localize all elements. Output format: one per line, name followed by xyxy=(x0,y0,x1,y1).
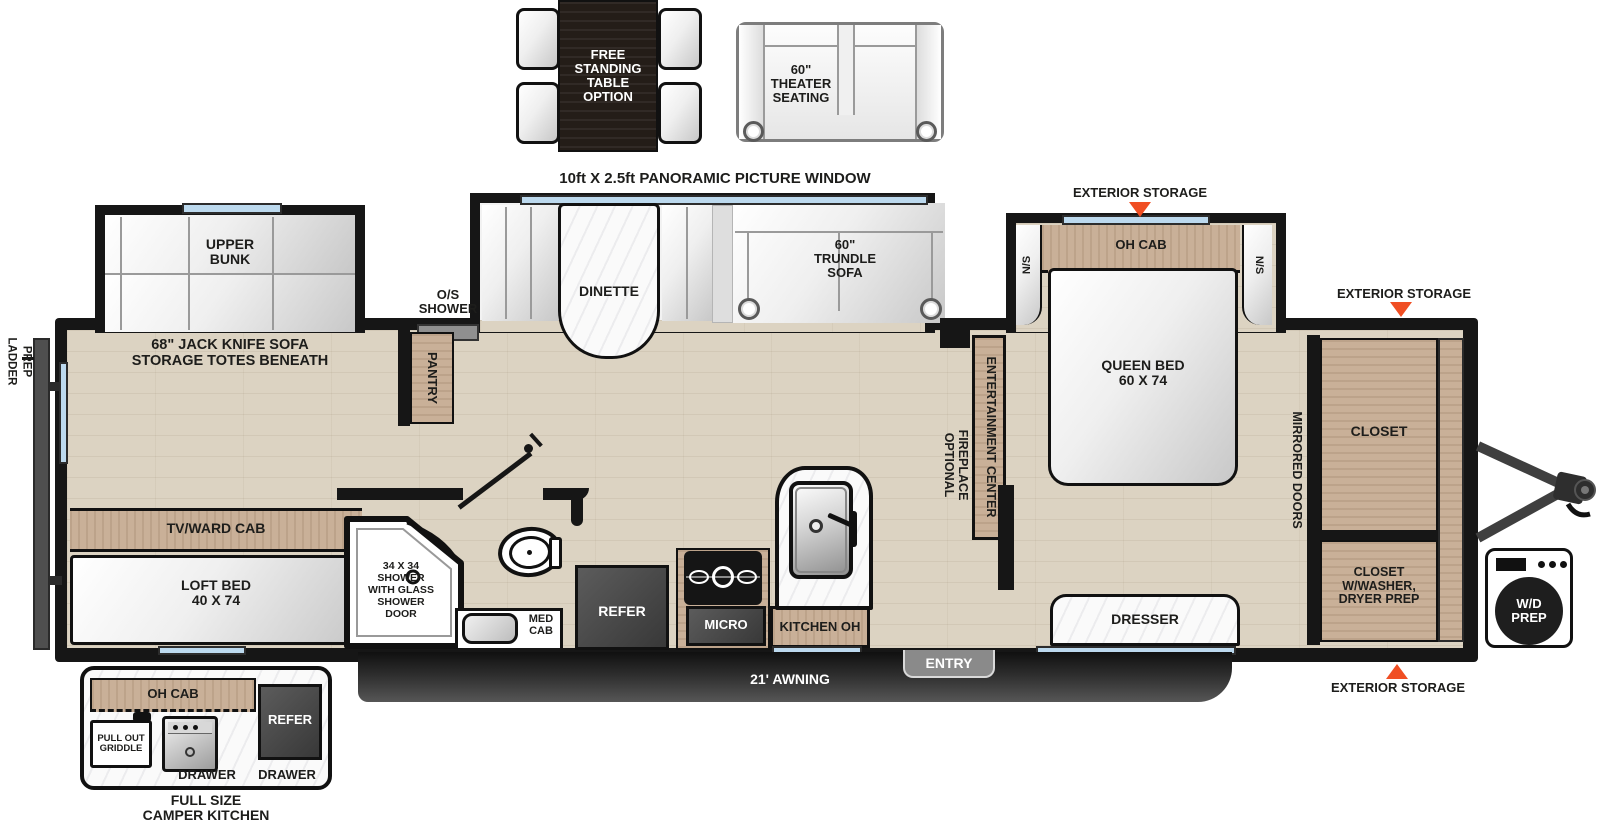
range-burner-icon xyxy=(185,747,195,757)
slideout-partition xyxy=(712,205,733,323)
bunk-divider xyxy=(272,217,274,330)
loft-bed-label: LOFT BED 40 X 74 xyxy=(70,578,362,608)
wd-knob-icon xyxy=(1549,561,1556,568)
nightstand-right-label: N/S xyxy=(1250,235,1264,295)
cooktop xyxy=(684,551,762,605)
drawer-label: DRAWER xyxy=(248,768,326,782)
trundle-sofa-label: 60" TRUNDLE SOFA xyxy=(795,238,895,280)
nightstand-left-label: N/S xyxy=(1022,235,1036,295)
exterior-storage-top-marker-icon xyxy=(1129,202,1151,217)
rv-floorplan-canvas: FREE STANDING TABLE OPTION 60" THEATER S… xyxy=(0,0,1600,828)
theater-cupholder xyxy=(743,121,764,142)
closet-washer-label: CLOSET W/WASHER, DRYER PREP xyxy=(1318,566,1440,607)
range-knob-icon xyxy=(193,725,198,730)
entry-label: ENTRY xyxy=(903,656,995,671)
mirrored-doors-label: MIRRORED DOORS xyxy=(1289,375,1303,565)
bench-divider xyxy=(530,207,532,319)
sofa-cupholder xyxy=(920,298,942,320)
queen-bed-label: QUEEN BED 60 X 74 xyxy=(1048,358,1238,388)
awning-label: 21' AWNING xyxy=(700,672,880,687)
bathroom-wall xyxy=(337,488,463,500)
bench-divider xyxy=(686,207,688,319)
dining-chair xyxy=(516,8,560,70)
bunk-divider xyxy=(120,217,122,330)
wd-knob-icon xyxy=(1538,561,1545,568)
partition-wall xyxy=(998,485,1014,590)
bunk-sofa-cushions xyxy=(105,275,355,332)
wd-drum-icon: W/D PREP xyxy=(1495,577,1563,645)
micro-label: MICRO xyxy=(686,618,766,632)
theater-cupholder xyxy=(916,121,937,142)
jack-knife-sofa-label: 68" JACK KNIFE SOFA STORAGE TOTES BENEAT… xyxy=(95,338,365,369)
wd-prep-label: W/D xyxy=(1511,597,1546,611)
washer-dryer-prep-icon: W/D PREP xyxy=(1485,548,1573,648)
optional-fireplace-label: OPTIONAL xyxy=(941,410,955,520)
partition-wall xyxy=(940,318,970,348)
range-knob-icon xyxy=(173,725,178,730)
pantry-wall xyxy=(398,330,410,426)
panoramic-window-label: 10ft X 2.5ft PANORAMIC PICTURE WINDOW xyxy=(480,171,950,187)
range-knob-icon xyxy=(183,725,188,730)
kitchen-oh-label: KITCHEN OH xyxy=(770,620,870,634)
tv-ward-cab-label: TV/WARD CAB xyxy=(70,521,362,536)
toilet-tank xyxy=(549,537,562,569)
pantry-label: PANTRY xyxy=(425,338,439,418)
upper-bunk-label: UPPER BUNK xyxy=(160,237,300,267)
ladder-prep-label: LADDER xyxy=(5,332,18,392)
exterior-storage-right-marker-icon xyxy=(1390,302,1412,317)
faucet-mount-icon xyxy=(849,511,857,547)
exterior-storage-bottom-label: EXTERIOR STORAGE xyxy=(1312,681,1484,695)
exterior-storage-right-label: EXTERIOR STORAGE xyxy=(1318,287,1490,301)
closet-divider-wall xyxy=(1320,530,1438,540)
camper-oh-cab-label: OH CAB xyxy=(90,687,256,701)
wd-panel-icon xyxy=(1496,558,1526,571)
free-standing-table: FREE STANDING TABLE OPTION xyxy=(558,0,658,152)
oh-cab-label: OH CAB xyxy=(1042,238,1240,252)
bench-divider xyxy=(505,207,507,319)
entertainment-center-label: ENTERTAINMENT CENTER xyxy=(981,337,997,537)
camper-kitchen-caption: FULL SIZE CAMPER KITCHEN xyxy=(116,793,296,823)
vanity-sink xyxy=(462,613,518,644)
pull-out-griddle: PULL OUT GRIDDLE xyxy=(90,720,152,768)
dresser-label: DRESSER xyxy=(1050,612,1240,627)
bunk-window xyxy=(182,203,282,214)
dining-chair xyxy=(658,82,702,144)
bathroom-wall xyxy=(571,498,583,526)
shower-label: 34 X 34 SHOWER WITH GLASS SHOWER DOOR xyxy=(348,560,454,620)
bottom-window xyxy=(158,646,246,655)
toilet-drain-icon xyxy=(527,550,532,555)
trailer-hitch xyxy=(1470,438,1600,550)
bunk-divider xyxy=(188,217,190,330)
door-handle-icon xyxy=(524,444,533,453)
closet-label: CLOSET xyxy=(1320,424,1438,439)
dining-chair xyxy=(516,82,560,144)
sofa-cupholder xyxy=(738,298,760,320)
closet-side-panel xyxy=(1438,338,1464,642)
refer-label: REFER xyxy=(575,604,669,619)
camper-kitchen-range xyxy=(162,716,218,772)
os-shower-label: O/S SHOWER xyxy=(400,288,496,316)
theater-seating-label: 60" THEATER SEATING xyxy=(765,63,837,105)
left-wall-window xyxy=(59,362,68,464)
wd-knob-icon xyxy=(1560,561,1567,568)
sink-drain-icon xyxy=(809,519,823,533)
exterior-storage-top-label: EXTERIOR STORAGE xyxy=(1054,186,1226,200)
drawer-label: DRAWER xyxy=(168,768,246,782)
table-option-label: FREE xyxy=(575,48,642,62)
dinette-table xyxy=(558,203,660,359)
theater-console xyxy=(837,25,855,115)
dining-chair xyxy=(658,8,702,70)
med-cab-label: MED CAB xyxy=(520,614,562,638)
camper-refer-label: REFER xyxy=(258,713,322,727)
dinette-label: DINETTE xyxy=(560,284,658,299)
cooktop-grate-line xyxy=(686,576,760,578)
ladder-bracket xyxy=(48,576,62,585)
theater-seating: 60" THEATER SEATING xyxy=(736,22,944,142)
exterior-storage-bottom-marker-icon xyxy=(1386,664,1408,679)
